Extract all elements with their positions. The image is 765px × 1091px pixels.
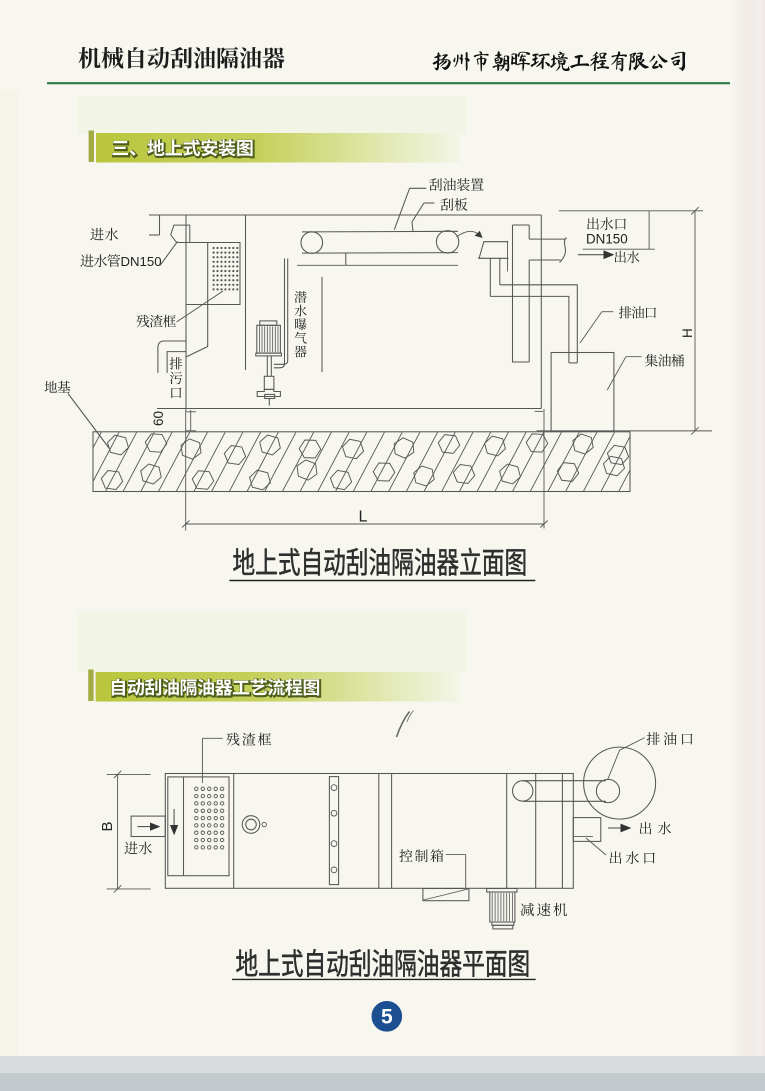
- svg-text:60: 60: [151, 411, 166, 426]
- svg-text:DN150: DN150: [586, 232, 628, 247]
- svg-text:DN150: DN150: [121, 254, 162, 269]
- svg-text:L: L: [359, 508, 368, 525]
- svg-text:5: 5: [381, 1006, 393, 1029]
- svg-text:B: B: [99, 821, 116, 831]
- svg-text:H: H: [680, 328, 695, 338]
